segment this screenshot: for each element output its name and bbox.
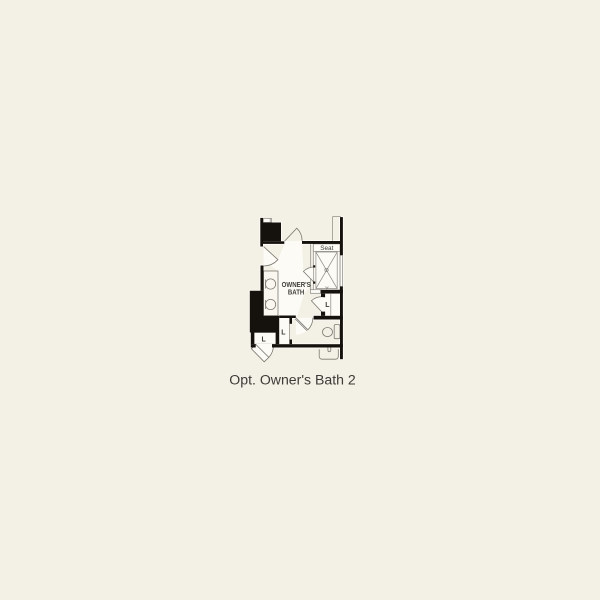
svg-text:L: L (325, 302, 330, 309)
svg-text:L: L (281, 329, 286, 336)
svg-text:Opt. Owner's Bath 2: Opt. Owner's Bath 2 (229, 371, 356, 387)
svg-text:L: L (261, 336, 266, 343)
svg-text:Seat: Seat (320, 245, 333, 252)
svg-text:BATH: BATH (288, 288, 304, 297)
